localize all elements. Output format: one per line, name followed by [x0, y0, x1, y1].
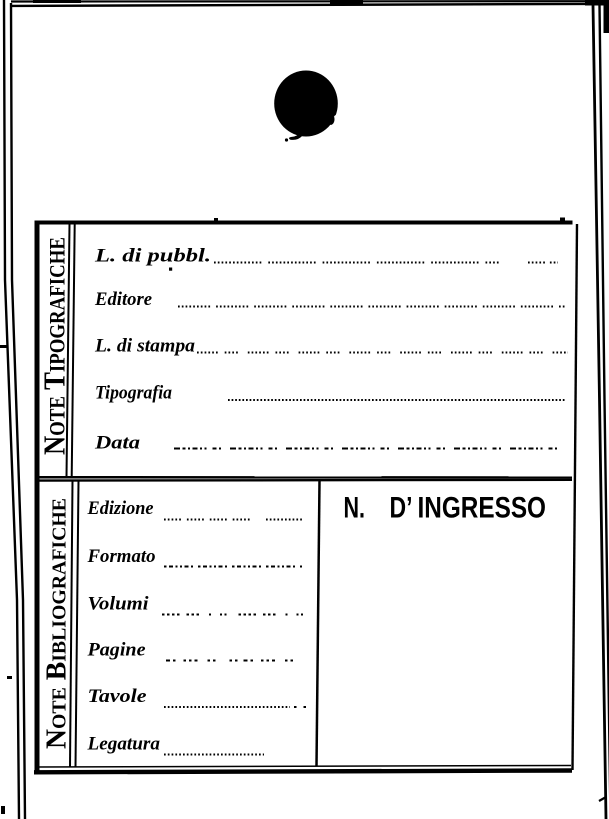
svg-text:Data: Data — [94, 433, 141, 454]
svg-text:Note Tipografiche: Note Tipografiche — [37, 237, 72, 455]
svg-text:Legatura: Legatura — [86, 734, 160, 755]
svg-text:Note Bibliografiche: Note Bibliografiche — [42, 498, 73, 749]
svg-text:INGRESSO: INGRESSO — [418, 492, 547, 525]
svg-text:Edizione: Edizione — [87, 498, 155, 519]
svg-text:N.: N. — [344, 492, 366, 525]
svg-text:Pagine: Pagine — [86, 640, 146, 661]
svg-text:Tavole: Tavole — [88, 686, 148, 707]
svg-text:Volumi: Volumi — [88, 594, 150, 615]
svg-text:Editore: Editore — [94, 289, 153, 310]
svg-text:Tipografia: Tipografia — [95, 383, 172, 404]
svg-text:L. di stampa: L. di stampa — [94, 336, 196, 357]
svg-text:L. di pubbl.: L. di pubbl. — [94, 246, 211, 267]
svg-text:Formato: Formato — [87, 546, 156, 567]
svg-text:D’: D’ — [390, 492, 413, 525]
